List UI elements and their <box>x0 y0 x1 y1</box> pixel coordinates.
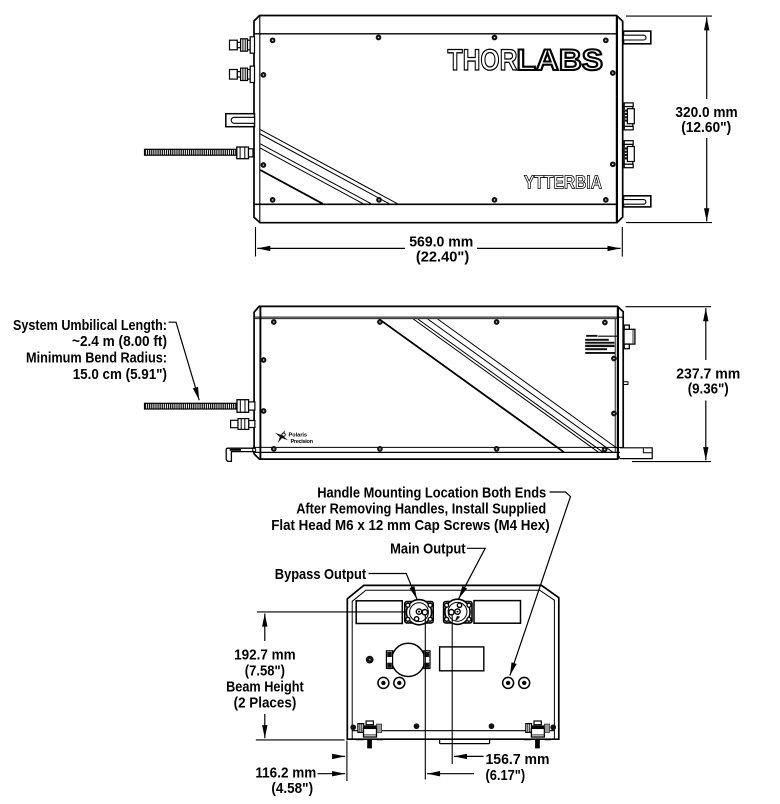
svg-text:116.2 mm: 116.2 mm <box>255 764 316 781</box>
svg-text:(2 Places): (2 Places) <box>234 695 297 712</box>
svg-text:(4.58"): (4.58") <box>271 780 313 797</box>
svg-text:Bypass Output: Bypass Output <box>275 566 366 583</box>
svg-text:Precision: Precision <box>291 439 314 445</box>
svg-text:Beam Height: Beam Height <box>226 679 304 696</box>
svg-text:System Umbilical Length:: System Umbilical Length: <box>13 317 167 334</box>
svg-text:YTTERBIA: YTTERBIA <box>524 171 602 192</box>
svg-text:15.0 cm (5.91"): 15.0 cm (5.91") <box>73 366 167 383</box>
svg-text:(6.17"): (6.17") <box>486 767 526 784</box>
svg-text:After Removing Handles, Instal: After Removing Handles, Install Supplied <box>296 501 546 518</box>
svg-text:THOR: THOR <box>448 44 518 77</box>
svg-text:(12.60"): (12.60") <box>681 119 731 136</box>
svg-text:LABS: LABS <box>517 44 604 77</box>
svg-text:156.7 mm: 156.7 mm <box>486 751 550 768</box>
svg-text:(7.58"): (7.58") <box>245 663 285 680</box>
svg-text:192.7 mm: 192.7 mm <box>234 647 296 664</box>
svg-text:Main Output: Main Output <box>390 540 466 557</box>
svg-text:Minimum Bend Radius:: Minimum Bend Radius: <box>26 350 167 367</box>
svg-text:Handle Mounting Location Both: Handle Mounting Location Both Ends <box>317 484 546 501</box>
svg-text:(22.40"): (22.40") <box>416 248 469 265</box>
svg-text:(9.36"): (9.36") <box>688 381 729 398</box>
svg-text:~2.4 m (8.00 ft): ~2.4 m (8.00 ft) <box>72 333 167 350</box>
svg-text:Flat Head M6 x 12 mm Cap Screw: Flat Head M6 x 12 mm Cap Screws (M4 Hex) <box>271 517 550 534</box>
svg-text:Polaris: Polaris <box>289 432 308 438</box>
